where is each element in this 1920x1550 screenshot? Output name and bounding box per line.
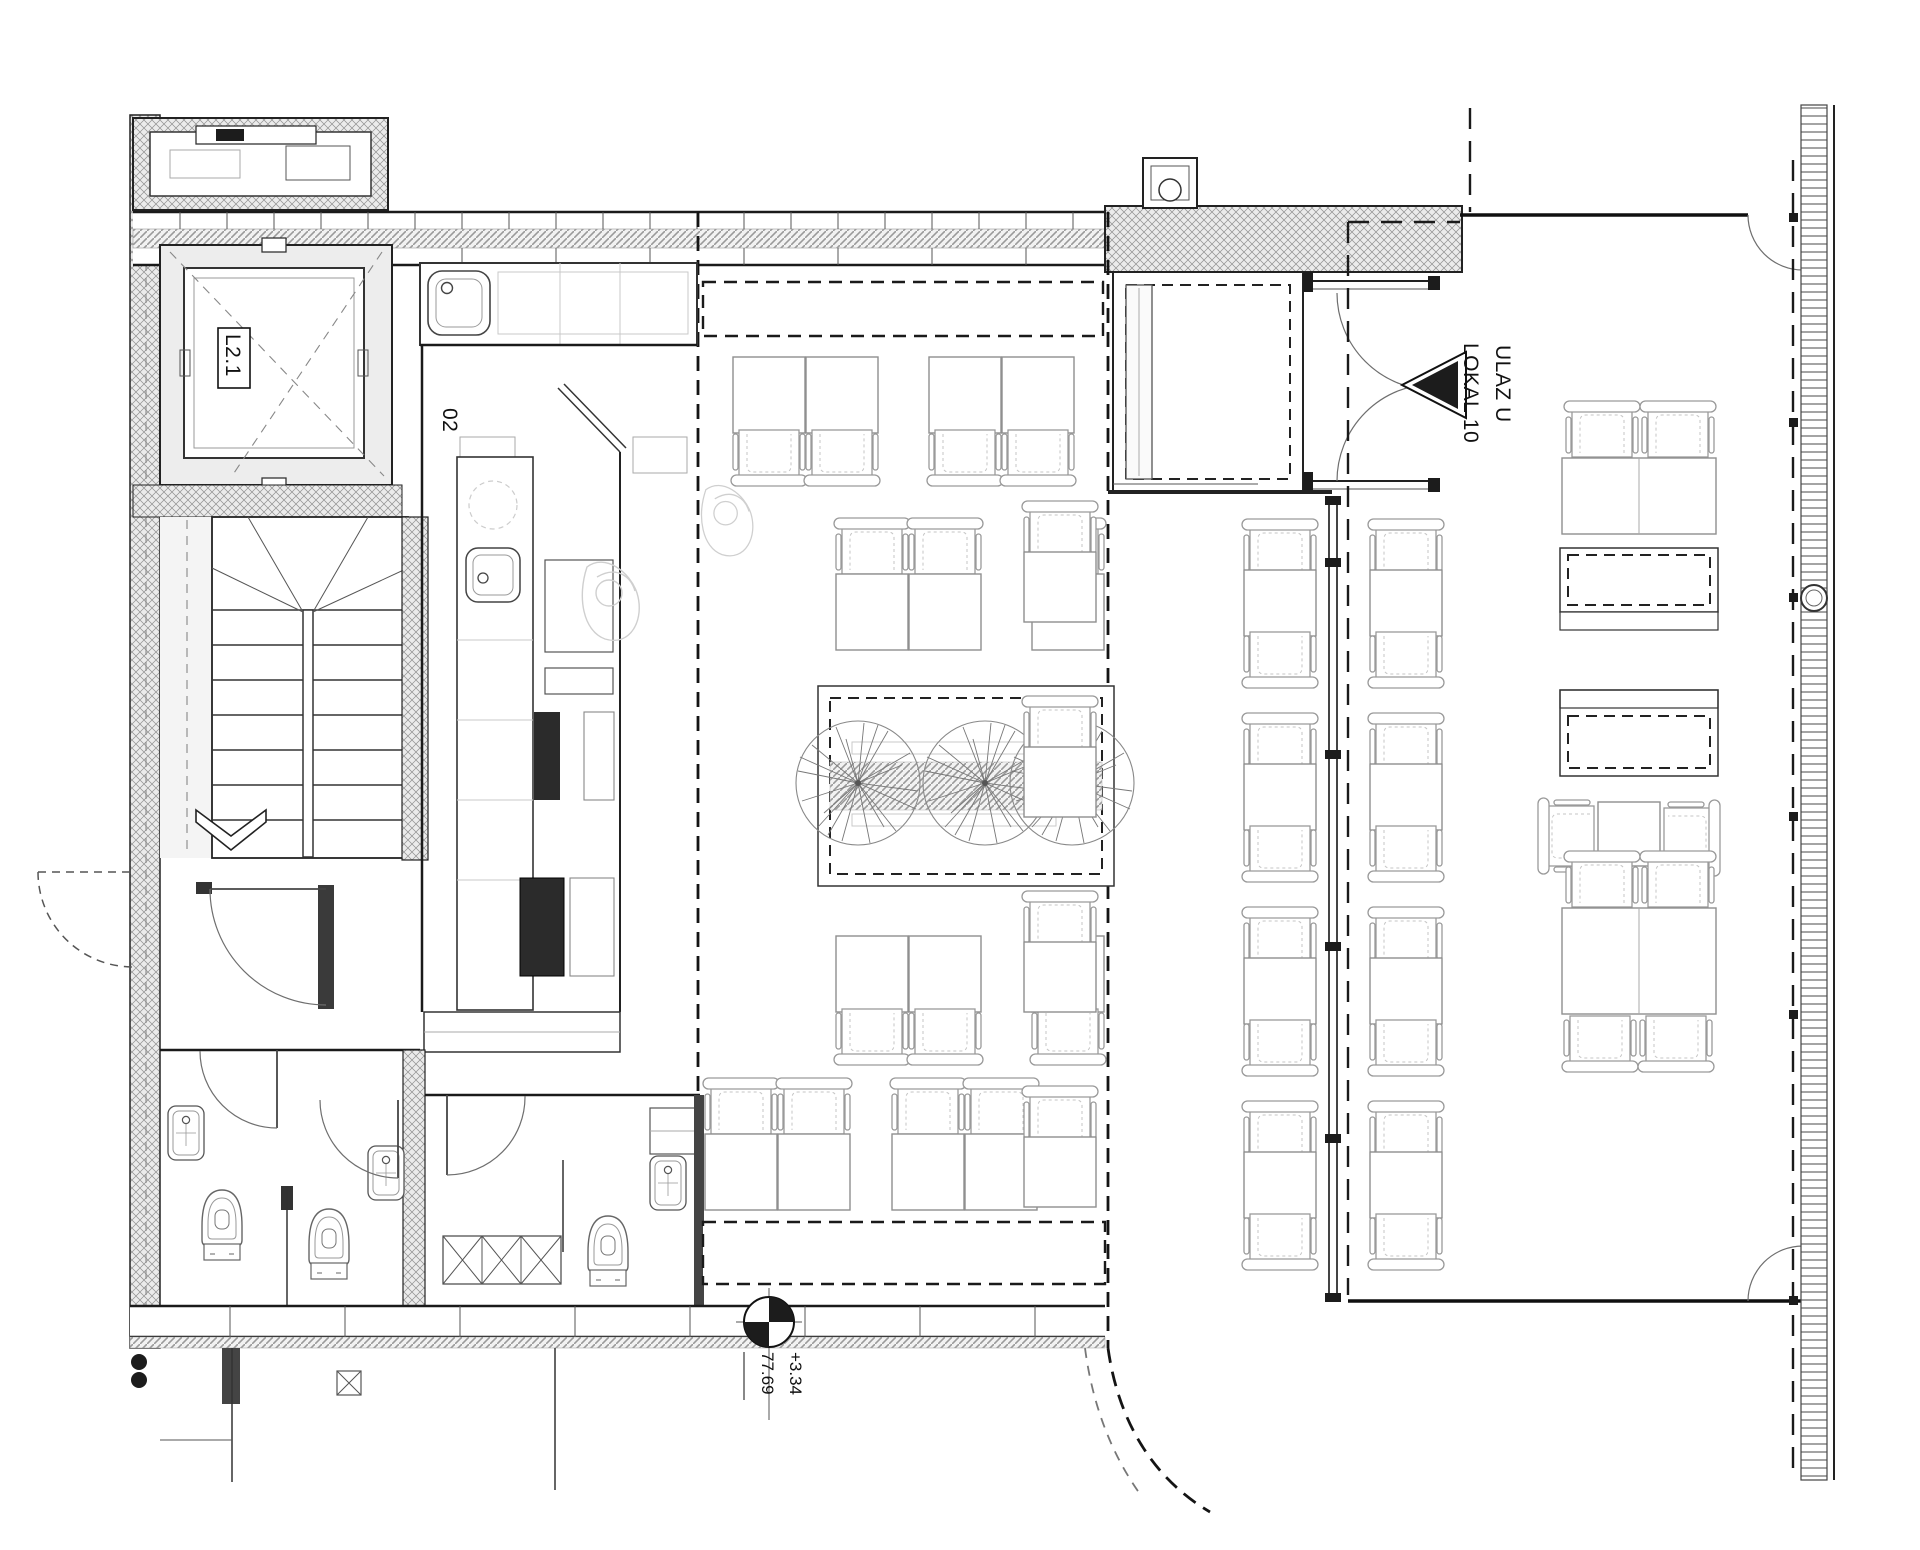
terrace-planter-1 — [1560, 548, 1718, 630]
entrance-text-line1: ULAZ U — [1491, 345, 1514, 423]
toilet-icon — [202, 1190, 242, 1260]
sink-icon — [168, 1106, 204, 1160]
table-row-bottom — [703, 1078, 1039, 1210]
wc-area — [160, 1050, 704, 1346]
bottom-window-band — [130, 1306, 1105, 1348]
floor-drain-icon — [337, 1371, 361, 1395]
level-relative-text: +3.34 — [786, 1352, 805, 1395]
left-wall — [130, 115, 160, 1348]
lower-room-fragment — [131, 1348, 555, 1490]
terrace-planter-2 — [1560, 690, 1718, 776]
window-tables-inside — [1242, 519, 1318, 1270]
bench-bottom — [703, 1222, 1105, 1284]
lift-machine — [196, 126, 316, 144]
elevator-label: L2.1 — [218, 328, 250, 388]
toilet-icon — [309, 1209, 349, 1279]
bar-equipment-dark — [534, 712, 560, 800]
table-row-top — [731, 357, 1076, 486]
entrance-label: ULAZ U LOKAL 10 — [1402, 343, 1514, 443]
room-number-text: 02 — [438, 408, 461, 432]
bench-top — [703, 282, 1103, 336]
stair-stringer — [303, 610, 313, 857]
staircase — [160, 517, 408, 858]
elevator-id-text: L2.1 — [221, 334, 244, 377]
roof-drain-box — [1143, 158, 1197, 208]
pass-counter-flap — [558, 384, 626, 452]
changing-counter — [443, 1236, 561, 1284]
wc-stall-3 — [425, 1095, 704, 1310]
window-tables-outside — [1368, 519, 1444, 1270]
sink-icon — [650, 1156, 686, 1210]
ghost-person-2 — [702, 485, 753, 555]
level-absolute-text: 77.69 — [758, 1352, 777, 1395]
neighbor-wall — [1470, 105, 1834, 1480]
glass-facade — [1325, 496, 1341, 1302]
bar-equipment-dark-2 — [520, 878, 564, 976]
terrace-four-top — [1562, 851, 1716, 1072]
level-benchmark-icon — [769, 1297, 794, 1322]
bar-sink — [466, 548, 520, 602]
entrance-vestibule — [1108, 272, 1440, 492]
wc-stall-2 — [309, 1100, 404, 1279]
elevator-shaft: L2.1 — [160, 238, 392, 492]
entrance-text-line2: LOKAL 10 — [1459, 343, 1482, 443]
downpipe-icon — [1801, 585, 1827, 611]
terrace-furniture — [1538, 401, 1720, 1072]
exterior-door-dashed — [38, 872, 133, 967]
toilet-icon — [588, 1216, 628, 1286]
floor-plan: L2.1 — [0, 0, 1920, 1550]
bar-counter: 02 — [424, 408, 620, 1052]
corridor-door — [196, 882, 334, 1009]
terrace-door-bottom — [1748, 1246, 1803, 1301]
kitchen-sink — [428, 271, 490, 335]
wc-stall-1 — [168, 1050, 293, 1306]
zone-boundary-curve — [1108, 1348, 1210, 1512]
top-wall — [1105, 206, 1462, 272]
wc-mid-wall — [403, 1050, 425, 1346]
stair-right-wall — [402, 517, 428, 860]
machine-room — [133, 118, 388, 210]
terrace-door-top — [1748, 215, 1803, 272]
zone-boundary-curve-2 — [1085, 1348, 1140, 1494]
